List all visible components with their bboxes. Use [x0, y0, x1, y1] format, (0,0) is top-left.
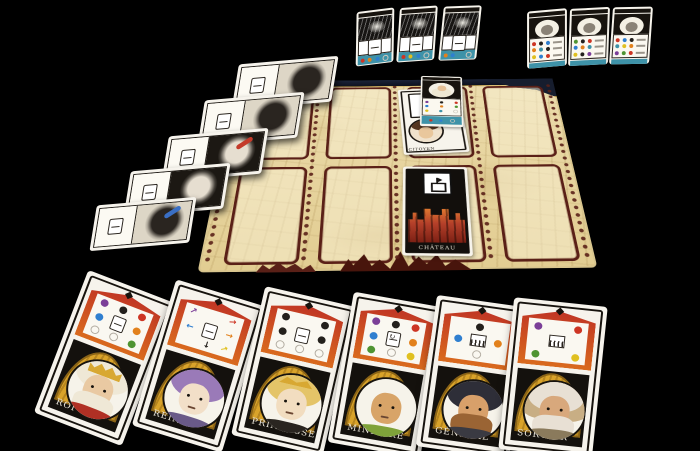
black-dot-icon [118, 306, 128, 316]
card-icon [451, 34, 467, 51]
blue-dot-icon [546, 40, 550, 44]
green-dot-icon [622, 51, 626, 55]
legend-row [615, 50, 645, 55]
blue-dot-icon [369, 331, 378, 340]
blue-dot-icon [94, 312, 104, 322]
icon-box-dots [94, 242, 131, 245]
portrait-eye [103, 389, 107, 393]
legend-rows [570, 34, 607, 60]
character-card-face: SORCIER [503, 301, 604, 451]
portrait-eye [478, 408, 481, 411]
portrait-zone: PRINCESSE [244, 357, 330, 444]
legend-row [532, 46, 562, 53]
portrait-eye [91, 385, 95, 389]
portrait-face [438, 85, 447, 91]
side-card[interactable] [89, 197, 196, 251]
green-dot-icon [455, 106, 458, 108]
score-reference-card[interactable] [527, 8, 567, 69]
card-icon [179, 149, 196, 166]
legend-row [615, 44, 645, 49]
green-dot-icon [367, 345, 376, 354]
action-dot-grid: →→→→→→ [175, 302, 245, 360]
blue-dot-icon [574, 46, 578, 50]
accent-mark [235, 136, 253, 150]
portrait-face [369, 391, 404, 426]
red-dot-icon [137, 313, 147, 323]
arrow-icon: → [224, 332, 234, 342]
black-dot-icon [320, 321, 329, 330]
ring-icon [89, 324, 100, 335]
black-dot-icon [630, 37, 634, 41]
blue-dot-icon [623, 38, 627, 42]
portrait-face [625, 22, 638, 32]
portrait-mouth [381, 415, 389, 418]
blue-dot-icon [425, 105, 428, 107]
action-dot-grid [525, 318, 589, 366]
text-line [553, 40, 562, 43]
side-card-face [93, 200, 193, 248]
castle-icon [431, 183, 447, 192]
black-dot-icon [539, 41, 543, 45]
black-dot-icon [317, 335, 326, 344]
objective-card[interactable] [438, 5, 482, 61]
orange-dot-icon [440, 105, 443, 107]
portrait-face [418, 127, 434, 139]
score-reference-card[interactable] [568, 7, 610, 66]
red-dot-icon [629, 50, 633, 54]
tabletop-photo: CITOYEN CHÂTEAU [0, 0, 700, 451]
red-dot-icon [532, 41, 536, 45]
black-dot-icon [546, 47, 550, 51]
purple-dot-icon [534, 321, 543, 329]
portrait-mouth [285, 411, 293, 415]
castle-illustration [408, 208, 466, 243]
color-band [440, 49, 475, 59]
orange-dot-icon [581, 45, 585, 49]
text-line [636, 45, 645, 47]
portrait-oval [535, 19, 559, 39]
black-dot-icon [581, 39, 585, 43]
card-icon [201, 322, 219, 340]
card-slot[interactable] [325, 87, 392, 159]
character-portrait [57, 350, 139, 430]
red-dot-icon [402, 54, 406, 58]
portrait-panel [571, 14, 608, 36]
red-dot-icon [616, 38, 620, 42]
card-icon-box [441, 34, 477, 50]
action-panel [525, 318, 589, 366]
action-dot-grid [268, 308, 336, 362]
portrait-eye [296, 402, 300, 405]
legend-row [532, 52, 562, 59]
yellow-dot-icon [622, 44, 626, 48]
card-icon [141, 184, 158, 201]
orange-dot-icon [493, 339, 502, 347]
red-dot-icon [546, 53, 550, 57]
fence-icon [469, 334, 487, 348]
card-icon [249, 77, 266, 94]
action-shield [353, 303, 436, 371]
portrait-oval [619, 17, 644, 35]
chateau-card-face: CHÂTEAU [405, 169, 470, 254]
text-line [637, 38, 646, 40]
purple-dot-icon [100, 298, 110, 308]
text-line [595, 39, 604, 41]
ring-icon [386, 348, 396, 358]
ring-icon [453, 110, 458, 114]
yellow-dot-icon [425, 109, 428, 111]
portrait-eye [187, 394, 191, 398]
arrow-icon: → [189, 306, 200, 317]
card-portrait-art [132, 201, 192, 243]
action-panel [445, 316, 510, 366]
red-dot-icon [411, 324, 420, 333]
text-line [595, 45, 604, 47]
red-dot-icon [361, 58, 365, 63]
king-portrait [422, 80, 461, 99]
arrow-icon: → [186, 320, 196, 330]
legend-rows [529, 35, 565, 62]
green-dot-icon [531, 349, 540, 357]
legend-row [574, 38, 604, 44]
objective-card[interactable] [396, 5, 438, 62]
action-shield [260, 297, 345, 368]
chateau-icon-box [423, 172, 453, 195]
arrow-icon: → [200, 340, 211, 349]
ring-icon [423, 52, 429, 58]
portrait-eye [465, 406, 468, 409]
red-dot-icon [588, 38, 592, 42]
character-card[interactable]: SORCIER [498, 297, 607, 451]
orange-dot-icon [408, 338, 417, 347]
purple-dot-icon [587, 51, 591, 55]
king-reference-card[interactable] [420, 76, 464, 127]
ring-icon [465, 51, 472, 57]
blue-dot-icon [451, 53, 455, 57]
black-dot-icon [281, 312, 290, 321]
score-reference-card[interactable] [609, 7, 653, 65]
arrow-icon: → [220, 345, 229, 355]
blue-dot-icon [375, 56, 379, 61]
legend-row [616, 37, 646, 42]
reference-color-band [422, 116, 462, 125]
legend-row [574, 44, 604, 50]
fence-icon [548, 335, 565, 349]
black-dot-icon [440, 101, 443, 103]
portrait-oval [429, 83, 455, 98]
portrait-zone: REINE [145, 349, 235, 439]
legend-rows [611, 34, 649, 59]
portrait-collar [261, 416, 312, 437]
orange-dot-icon [444, 53, 448, 57]
portrait-panel [613, 14, 650, 35]
yellow-dot-icon [406, 352, 415, 361]
portrait-face [541, 24, 553, 35]
card-illustration [400, 13, 435, 38]
portrait-oval [577, 17, 602, 36]
card-icon [107, 218, 124, 235]
green-dot-icon [574, 39, 578, 43]
yellow-dot-icon [409, 54, 413, 58]
orange-dot-icon [532, 48, 536, 52]
blue-dot-icon [439, 119, 442, 121]
red-dot-icon [574, 326, 583, 334]
portrait-eye [284, 399, 288, 402]
text-line [636, 51, 645, 53]
red-dot-icon [429, 119, 432, 121]
color-band [570, 59, 606, 66]
action-panel [268, 308, 336, 362]
green-dot-icon [127, 339, 137, 349]
legend-row [425, 109, 458, 113]
teal-dot-icon [458, 52, 462, 56]
character-portrait [253, 367, 329, 441]
ring-icon [107, 331, 118, 342]
portrait-eye [560, 409, 563, 412]
card-icon [109, 314, 127, 333]
accent-mark [163, 205, 181, 219]
card-illustration [443, 12, 479, 35]
portrait-panel [529, 15, 565, 38]
legend-row [425, 105, 458, 108]
portrait-eye [199, 397, 203, 401]
blue-dot-icon [539, 54, 543, 58]
text-line [553, 47, 562, 50]
action-dot-grid [360, 313, 426, 365]
card-title-bar [615, 9, 651, 14]
teal-dot-icon [615, 44, 619, 48]
black-dot-icon [391, 320, 400, 329]
reference-legend [422, 98, 462, 116]
yellow-dot-icon [571, 353, 580, 361]
yellow-dot-icon [573, 52, 577, 56]
red-dot-icon [455, 102, 458, 104]
ring-icon [450, 119, 455, 123]
black-dot-icon [476, 323, 485, 331]
black-dot-icon [278, 326, 287, 335]
action-dot-grid [83, 293, 154, 354]
yellow-dot-icon [532, 55, 536, 59]
ring-icon [471, 350, 481, 360]
character-portrait [155, 360, 234, 437]
portrait-eye [547, 407, 550, 410]
teal-dot-icon [588, 45, 592, 49]
ring-icon [382, 54, 388, 61]
arrow-icon: → [229, 319, 237, 328]
purple-dot-icon [425, 101, 428, 103]
text-line [553, 53, 562, 56]
card-cycle-icon [385, 330, 401, 347]
portrait-eye [391, 406, 394, 409]
orange-dot-icon [629, 44, 633, 48]
card-icon [215, 113, 232, 130]
card-slot[interactable] [223, 167, 308, 265]
legend-row [573, 51, 603, 57]
black-dot-icon [580, 52, 584, 56]
color-band [611, 59, 647, 65]
card-slot[interactable] [317, 166, 392, 264]
objective-card[interactable] [356, 7, 395, 66]
card-icon [294, 326, 311, 344]
card-icon [368, 38, 382, 56]
ring-icon [294, 344, 305, 354]
portrait-face [583, 23, 595, 34]
action-panel: →→→→→→ [175, 302, 245, 360]
text-line [594, 52, 603, 54]
orange-dot-icon [132, 326, 142, 336]
purple-dot-icon [372, 317, 381, 326]
legend-row [532, 39, 562, 46]
blue-dot-icon [416, 53, 420, 57]
character-portrait [437, 375, 509, 445]
legend-row [425, 101, 458, 104]
card-icon-box [399, 35, 434, 52]
teal-dot-icon [439, 110, 442, 112]
portrait-zone: SORCIER [510, 368, 589, 448]
action-dot-grid [445, 316, 510, 366]
purple-dot-icon [615, 51, 619, 55]
action-panel [83, 293, 154, 354]
action-panel [360, 313, 426, 365]
ring-icon [274, 339, 285, 349]
blue-dot-icon [454, 334, 463, 342]
teal-dot-icon [539, 47, 543, 51]
portrait-eye [378, 404, 381, 407]
orange-dot-icon [368, 57, 372, 62]
portrait-mouth [187, 405, 195, 409]
action-shield [517, 308, 596, 371]
portrait-zone: GÉNÉRAL [428, 366, 509, 448]
chateau-label: CHÂTEAU [405, 245, 470, 251]
portrait-zone: MINISTRE [340, 362, 424, 446]
ring-icon [313, 348, 324, 358]
card-icon [409, 35, 424, 52]
chateau-card[interactable]: CHÂTEAU [402, 167, 473, 257]
